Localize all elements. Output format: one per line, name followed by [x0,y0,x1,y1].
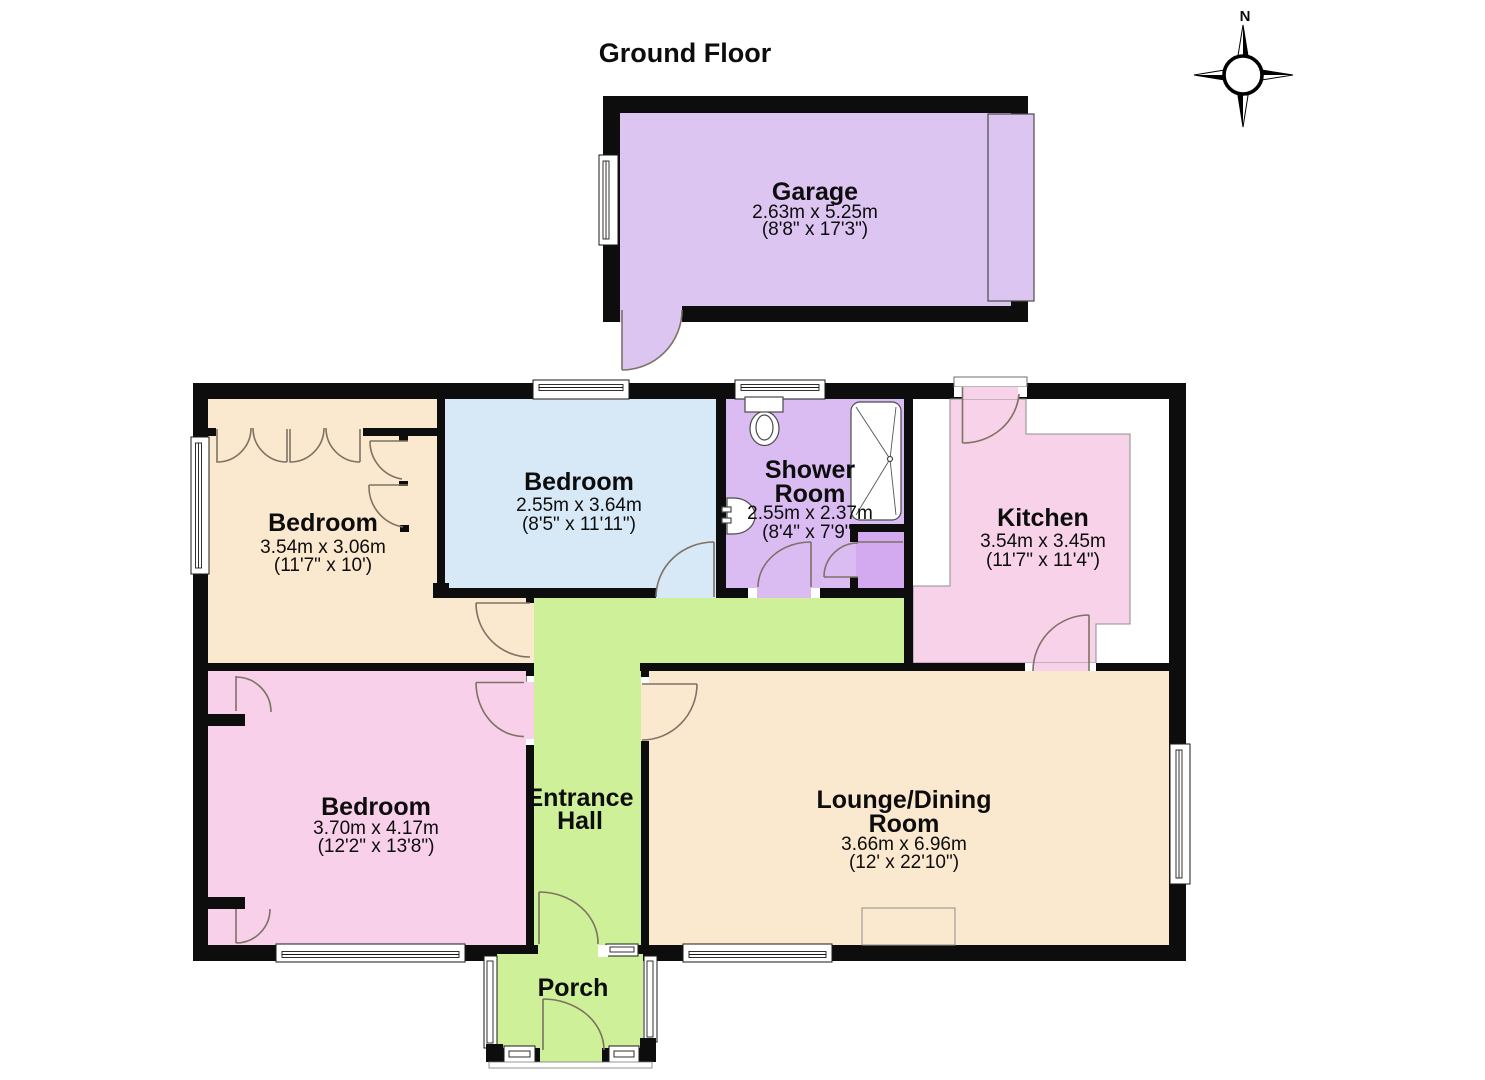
svg-text:Bedroom: Bedroom [524,468,634,496]
svg-text:(12' x 22'10"): (12' x 22'10") [849,852,959,873]
svg-text:N: N [1240,8,1251,25]
svg-text:(8'8" x 17'3"): (8'8" x 17'3") [762,219,868,240]
svg-text:Bedroom: Bedroom [268,509,378,537]
svg-text:(8'5" x 11'11"): (8'5" x 11'11") [522,514,636,535]
svg-text:Bedroom: Bedroom [321,793,431,821]
svg-text:(12'2" x 13'8"): (12'2" x 13'8") [318,836,435,857]
svg-text:(8'4" x 7'9"): (8'4" x 7'9") [762,522,858,543]
svg-text:2.55m x 3.64m: 2.55m x 3.64m [516,495,642,516]
svg-text:3.54m x 3.45m: 3.54m x 3.45m [980,531,1106,552]
svg-text:Hall: Hall [557,807,603,835]
svg-text:Porch: Porch [538,974,609,1002]
svg-text:2.55m x 2.37m: 2.55m x 2.37m [747,503,873,524]
svg-text:(11'7" x 11'4"): (11'7" x 11'4") [986,550,1100,571]
svg-text:(11'7" x 10'): (11'7" x 10') [274,555,372,576]
svg-text:Kitchen: Kitchen [997,504,1089,532]
svg-text:Ground Floor: Ground Floor [599,38,772,68]
